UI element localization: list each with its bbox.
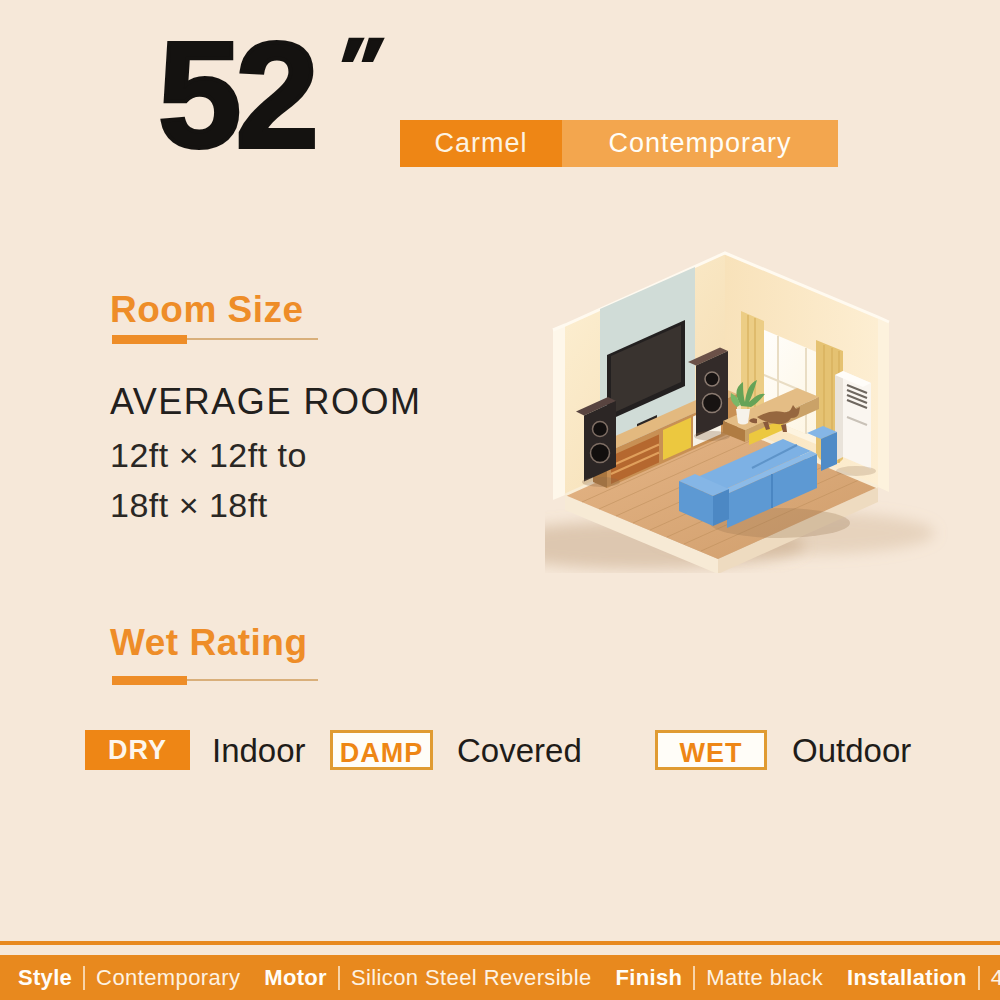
underline-thick-segment [112,676,187,685]
spec-motor: Motor Silicon Steel Reversible [264,965,591,991]
model-name-badge: Carmel [400,120,562,167]
spec-divider [338,966,340,990]
room-size-title: Room Size [110,291,304,328]
fan-size-heading: 52 [158,20,313,170]
underline-thin-segment [187,679,318,681]
spec-divider [83,966,85,990]
underline-thin-segment [187,338,318,340]
rating-badge-wet: WET [655,730,767,770]
spec-style: Style Contemporary [18,965,240,991]
right-wall-outer-edge [878,317,889,492]
spec-installation: Installation 45-60 mins [847,965,1000,991]
spec-label: Finish [616,965,683,991]
rating-label-outdoor: Outdoor [792,729,911,773]
spec-finish: Finish Matte black [616,965,823,991]
spec-value: Silicon Steel Reversible [351,965,592,991]
spec-label: Style [18,965,72,991]
spec-divider [693,966,695,990]
room-dimensions-line2: 18ft × 18ft [110,486,268,525]
wet-rating-underline [112,676,318,685]
rating-label-indoor: Indoor [212,729,306,773]
model-badges: Carmel Contemporary [400,120,838,167]
spec-label: Motor [264,965,327,991]
spec-value: Matte black [706,965,823,991]
spec-value: 45-60 mins [991,965,1000,991]
underline-thick-segment [112,335,187,344]
room-dimensions-line1: 12ft × 12ft to [110,436,307,475]
spec-label: Installation [847,965,967,991]
rating-label-covered: Covered [457,729,582,773]
footer-spec-bar: Style Contemporary Motor Silicon Steel R… [0,955,1000,1000]
footer-accent-line [0,941,1000,945]
inch-mark: ″ [327,26,382,110]
rating-badge-damp: DAMP [330,730,433,770]
wet-rating-row: DRY Indoor DAMP Covered WET Outdoor [85,727,985,773]
model-style-badge: Contemporary [562,120,838,167]
left-wall-outer-edge [553,325,565,500]
spec-divider [978,966,980,990]
rating-badge-dry: DRY [85,730,190,770]
spec-value: Contemporary [96,965,240,991]
living-room-illustration [545,193,965,573]
room-size-underline [112,335,318,344]
average-room-label: AVERAGE ROOM [110,381,421,423]
wet-rating-title: Wet Rating [110,624,308,661]
